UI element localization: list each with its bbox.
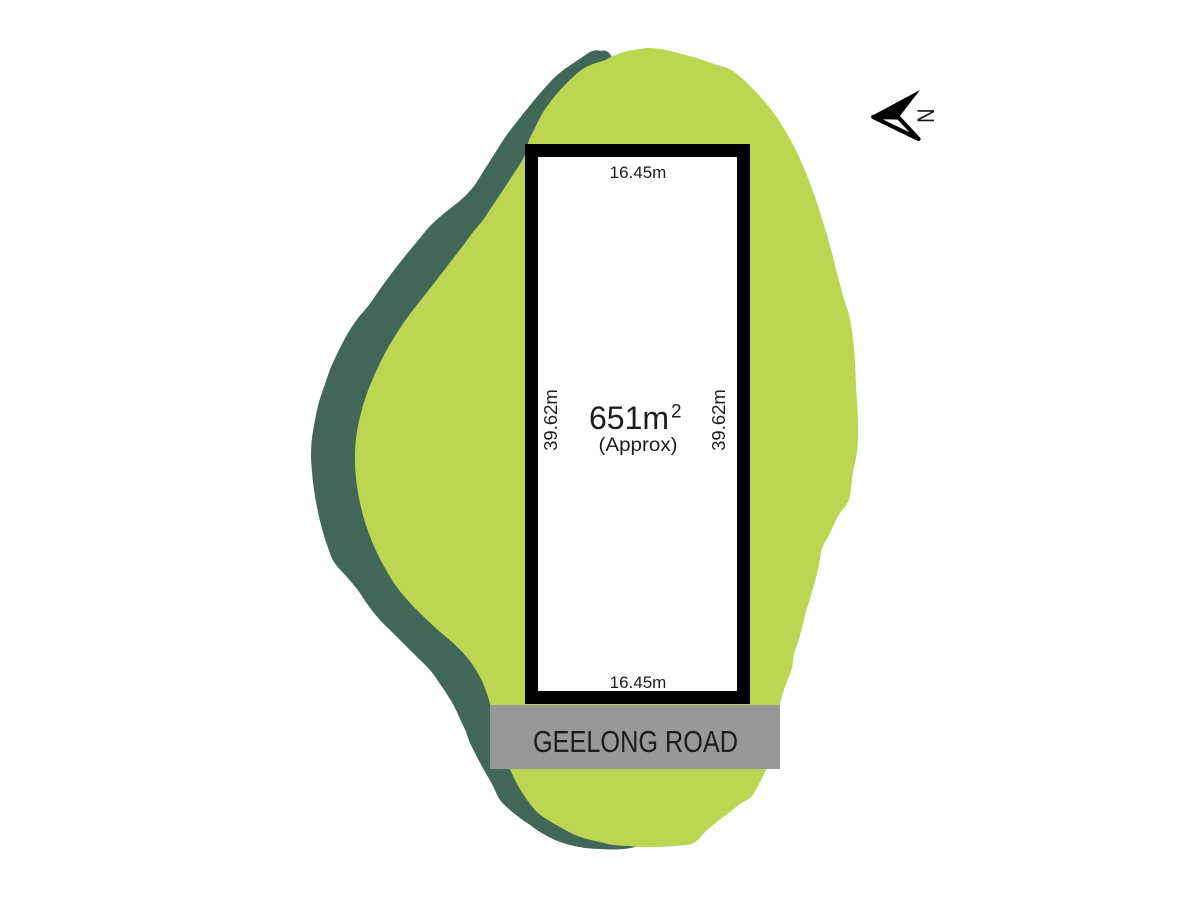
svg-text:16.45m: 16.45m bbox=[610, 673, 667, 692]
svg-text:(Approx): (Approx) bbox=[599, 435, 678, 456]
svg-text:N: N bbox=[912, 109, 939, 123]
svg-text:GEELONG ROAD: GEELONG ROAD bbox=[533, 725, 738, 759]
svg-text:16.45m: 16.45m bbox=[610, 163, 667, 182]
svg-text:651m2: 651m2 bbox=[589, 400, 682, 436]
svg-text:39.62m: 39.62m bbox=[540, 389, 561, 451]
svg-text:39.62m: 39.62m bbox=[708, 389, 729, 451]
